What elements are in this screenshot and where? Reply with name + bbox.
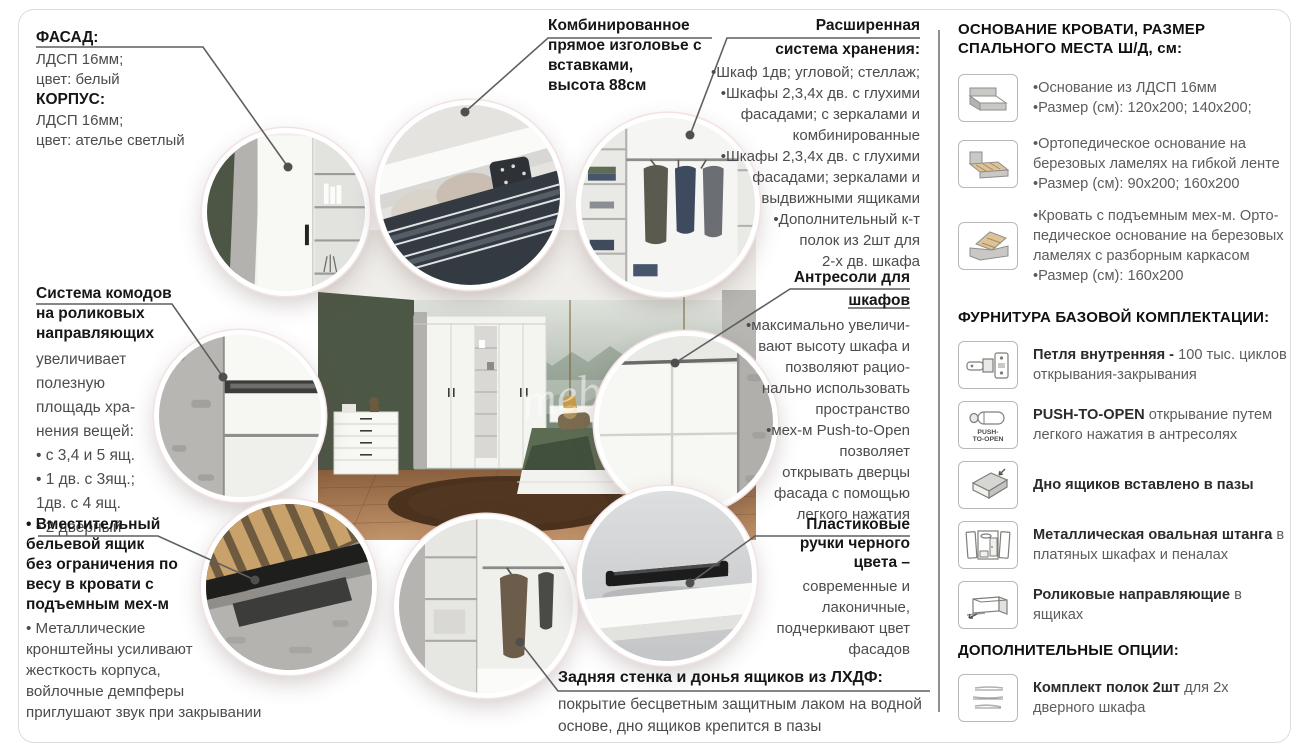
wardrobe-rod-text: Металлическая овальная штанга в платяных… [1033, 525, 1290, 565]
antresol-items: •максимально увеличи- вают высоту шкафа … [690, 315, 910, 525]
antresol-title-2: шкафов [690, 291, 910, 310]
spec-panel: ОСНОВАНИЕ КРОВАТИ, РАЗМЕР СПАЛЬНОГО МЕСТ… [958, 20, 1290, 734]
options-title: ДОПОЛНИТЕЛЬНЫЕ ОПЦИИ: [958, 641, 1290, 660]
bed-lamels-text: •Ортопедическое основание на березовых л… [1033, 134, 1280, 194]
linen-title: • Вместительный бельевой ящик без ограни… [26, 515, 316, 615]
drawer-bottom-item: Дно ящиков вставлено в пазы [958, 461, 1290, 509]
antresol-title-1: Антресоли для [690, 268, 910, 287]
roller-guides-text: Роликовые направляющие в ящиках [1033, 585, 1290, 625]
storage-title-1: Расширенная [680, 16, 920, 35]
callout-antresol: Антресоли для шкафов •максимально увелич… [690, 268, 910, 525]
wardrobe-interior-closeup [399, 519, 573, 693]
callout-linen: • Вместительный бельевой ящик без ограни… [26, 515, 316, 723]
push-to-open-item: PUSH- TO-OPEN PUSH-TO-OPEN открывание пу… [958, 401, 1290, 449]
bed-lift-item: •Кровать с подъемным мех-м. Орто- педиче… [958, 206, 1290, 286]
hinge-item: Петля внутренняя - 100 тыс. циклов откры… [958, 341, 1290, 389]
backwall-body: покрытие бесцветным защитным лаком на во… [558, 694, 938, 738]
chest-title: Система комодов на роликовых направляющи… [36, 284, 236, 344]
push-to-open-icon: PUSH- TO-OPEN [958, 401, 1018, 449]
panel-divider [938, 30, 940, 712]
callout-handles: Пластиковые ручки черного цвета – соврем… [690, 515, 910, 660]
push-to-open-label: PUSH- TO-OPEN [973, 429, 1004, 443]
callout-storage: Расширенная система хранения: •Шкаф 1дв;… [680, 16, 920, 272]
bed-base-item: •Основание из ЛДСП 16мм •Размер (см): 12… [958, 74, 1290, 122]
bed-lamels-item: •Ортопедическое основание на березовых л… [958, 134, 1290, 194]
bed-lift-icon [958, 222, 1018, 270]
bed-lamels-icon [958, 140, 1018, 188]
hinge-text: Петля внутренняя - 100 тыс. циклов откры… [1033, 345, 1290, 385]
headboard-closeup [380, 105, 560, 285]
bed-base-text: •Основание из ЛДСП 16мм •Размер (см): 12… [1033, 78, 1252, 118]
callout-backwall: Задняя стенка и донья ящиков из ЛХДФ: по… [558, 668, 938, 738]
linen-body: • Металлические кронштейны усиливают жес… [26, 618, 316, 723]
chest-body: увеличивает полезную площадь хра- нения … [36, 348, 236, 540]
korpus-title: КОРПУС: [36, 90, 256, 109]
callout-photo-headboard [375, 100, 565, 290]
callout-facade: ФАСАД: ЛДСП 16мм; цвет: белый КОРПУС: ЛД… [36, 28, 256, 151]
handles-body: современные и лаконичные, подчеркивают ц… [690, 576, 910, 660]
korpus-body: ЛДСП 16мм; цвет: ателье светлый [36, 111, 256, 151]
shelf-set-item: Комплект полок 2шт для 2х дверного шкафа [958, 674, 1290, 722]
wardrobe-rod-icon [958, 521, 1018, 569]
bed-base-title: ОСНОВАНИЕ КРОВАТИ, РАЗМЕР СПАЛЬНОГО МЕСТ… [958, 20, 1290, 58]
wardrobe-rod-item: Металлическая овальная штанга в платяных… [958, 521, 1290, 569]
bed-flat-icon [958, 74, 1018, 122]
facade-closeup [207, 133, 365, 291]
backwall-title: Задняя стенка и донья ящиков из ЛХДФ: [558, 668, 938, 687]
callout-photo-interior [394, 514, 578, 698]
storage-items: •Шкаф 1дв; угловой; стеллаж; •Шкафы 2,3,… [680, 62, 920, 272]
callout-photo-facade [202, 128, 370, 296]
facade-body: ЛДСП 16мм; цвет: белый [36, 50, 256, 90]
roller-guides-icon [958, 581, 1018, 629]
push-to-open-text: PUSH-TO-OPEN открывание путем легкого на… [1033, 405, 1290, 445]
hinge-icon [958, 341, 1018, 389]
product-infographic: mebel.ru [0, 0, 1302, 750]
storage-title-2: система хранения: [680, 40, 920, 59]
hardware-title: ФУРНИТУРА БАЗОВОЙ КОМПЛЕКТАЦИИ: [958, 308, 1290, 327]
callout-chest: Система комодов на роликовых направляющи… [36, 284, 236, 540]
bed-lift-text: •Кровать с подъемным мех-м. Орто- педиче… [1033, 206, 1284, 286]
handles-title: Пластиковые ручки черного цвета – [690, 515, 910, 572]
shelf-set-text: Комплект полок 2шт для 2х дверного шкафа [1033, 678, 1290, 718]
roller-guides-item: Роликовые направляющие в ящиках [958, 581, 1290, 629]
drawer-bottom-icon [958, 461, 1018, 509]
drawer-bottom-text: Дно ящиков вставлено в пазы [1033, 475, 1254, 495]
shelf-set-icon [958, 674, 1018, 722]
facade-title: ФАСАД: [36, 28, 256, 47]
